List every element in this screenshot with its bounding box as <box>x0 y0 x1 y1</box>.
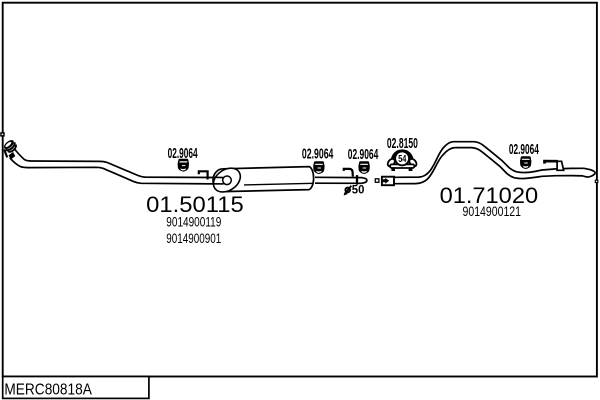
svg-text:9014900121: 9014900121 <box>463 203 522 219</box>
svg-text:9014900901: 9014900901 <box>166 230 221 246</box>
svg-text:02.9064: 02.9064 <box>348 146 379 163</box>
svg-text:02.9064: 02.9064 <box>168 145 198 162</box>
svg-text:9014900119: 9014900119 <box>166 214 221 230</box>
svg-text:50: 50 <box>352 183 365 197</box>
svg-text:54: 54 <box>398 153 406 165</box>
svg-text:MERC80818A: MERC80818A <box>4 381 92 398</box>
svg-text:02.9064: 02.9064 <box>509 141 539 158</box>
svg-text:02.8150: 02.8150 <box>387 135 418 152</box>
svg-text:02.9064: 02.9064 <box>302 146 334 163</box>
